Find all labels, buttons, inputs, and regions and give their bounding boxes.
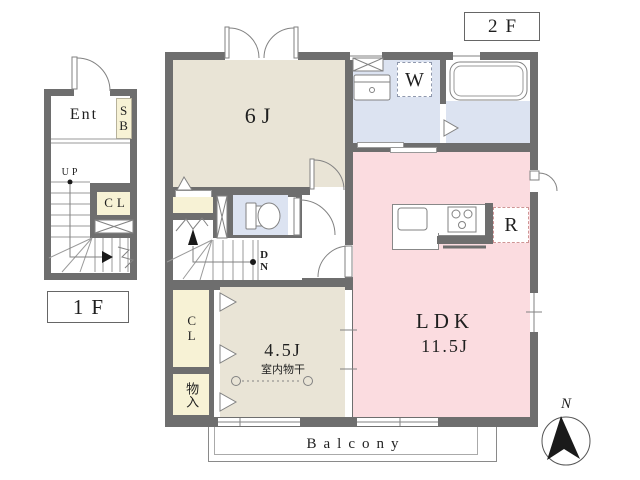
- window-right-ldk: [530, 293, 538, 332]
- toilet-room: [233, 195, 288, 235]
- stairs-2f-upper: [173, 220, 213, 242]
- closet-1f-label: CL: [97, 196, 133, 210]
- washroom-sliding-door-b: [390, 147, 437, 153]
- window-top-washroom: [350, 52, 382, 60]
- window-bottom-ldk: [357, 418, 438, 426]
- kitchen-counter: [392, 204, 488, 236]
- washer-space: W: [397, 62, 432, 97]
- hallway: [302, 195, 345, 278]
- stairs-2f-area: [173, 238, 302, 280]
- ldk-size-label: 11.5J: [385, 337, 505, 357]
- window-top-bath: [453, 52, 480, 60]
- kitchen-wall-front: [437, 236, 493, 244]
- compass-icon: [542, 416, 590, 465]
- balcony-inner-rail: [214, 427, 478, 455]
- floor2-tag-box: 2F: [464, 12, 540, 41]
- ldk-label: LDK: [385, 310, 505, 333]
- bathroom-upper: [446, 60, 530, 101]
- bath-door-gap: [440, 104, 446, 143]
- refrigerator-label: R: [504, 214, 517, 236]
- bedroom-door-gap: [310, 187, 345, 195]
- window-bottom-45: [218, 418, 300, 426]
- door-right-ldk-gap: [530, 170, 538, 192]
- compass-north-label: N: [548, 396, 584, 413]
- bedroom-entry-gap: [225, 52, 298, 60]
- kitchen-counter-return: [392, 233, 439, 250]
- floor1-tag-box: 1F: [47, 291, 129, 323]
- washer-label: W: [405, 69, 424, 91]
- closet-6j: [173, 197, 213, 213]
- room-ldk: [353, 152, 530, 417]
- floor2-tag: 2F: [488, 16, 524, 38]
- hall-ldk-door-gap: [345, 245, 353, 277]
- toilet-door-gap: [288, 197, 296, 235]
- indoor-drying-label: 室内物干: [234, 364, 332, 376]
- entry-door-icon: [72, 57, 110, 91]
- down-label: DN: [256, 248, 272, 274]
- storage-label: 物入: [173, 376, 209, 414]
- floor1-tag: 1F: [73, 295, 111, 320]
- bathroom-floor: [446, 101, 530, 143]
- up-label: UP: [56, 167, 86, 178]
- closet-45-label: CL: [173, 297, 209, 359]
- entrance-label: Ent: [51, 106, 117, 124]
- shoebox-label: SB: [116, 101, 130, 135]
- floor1-entry-door-gap: [74, 89, 110, 96]
- refrigerator-space: R: [493, 207, 529, 243]
- floorplan-page: W R Balcony 2F 1F: [0, 0, 640, 480]
- bedroom-size-label: 6J: [208, 104, 313, 128]
- room45-size-label: 4.5J: [238, 341, 328, 361]
- window-45-ldk: [345, 290, 352, 417]
